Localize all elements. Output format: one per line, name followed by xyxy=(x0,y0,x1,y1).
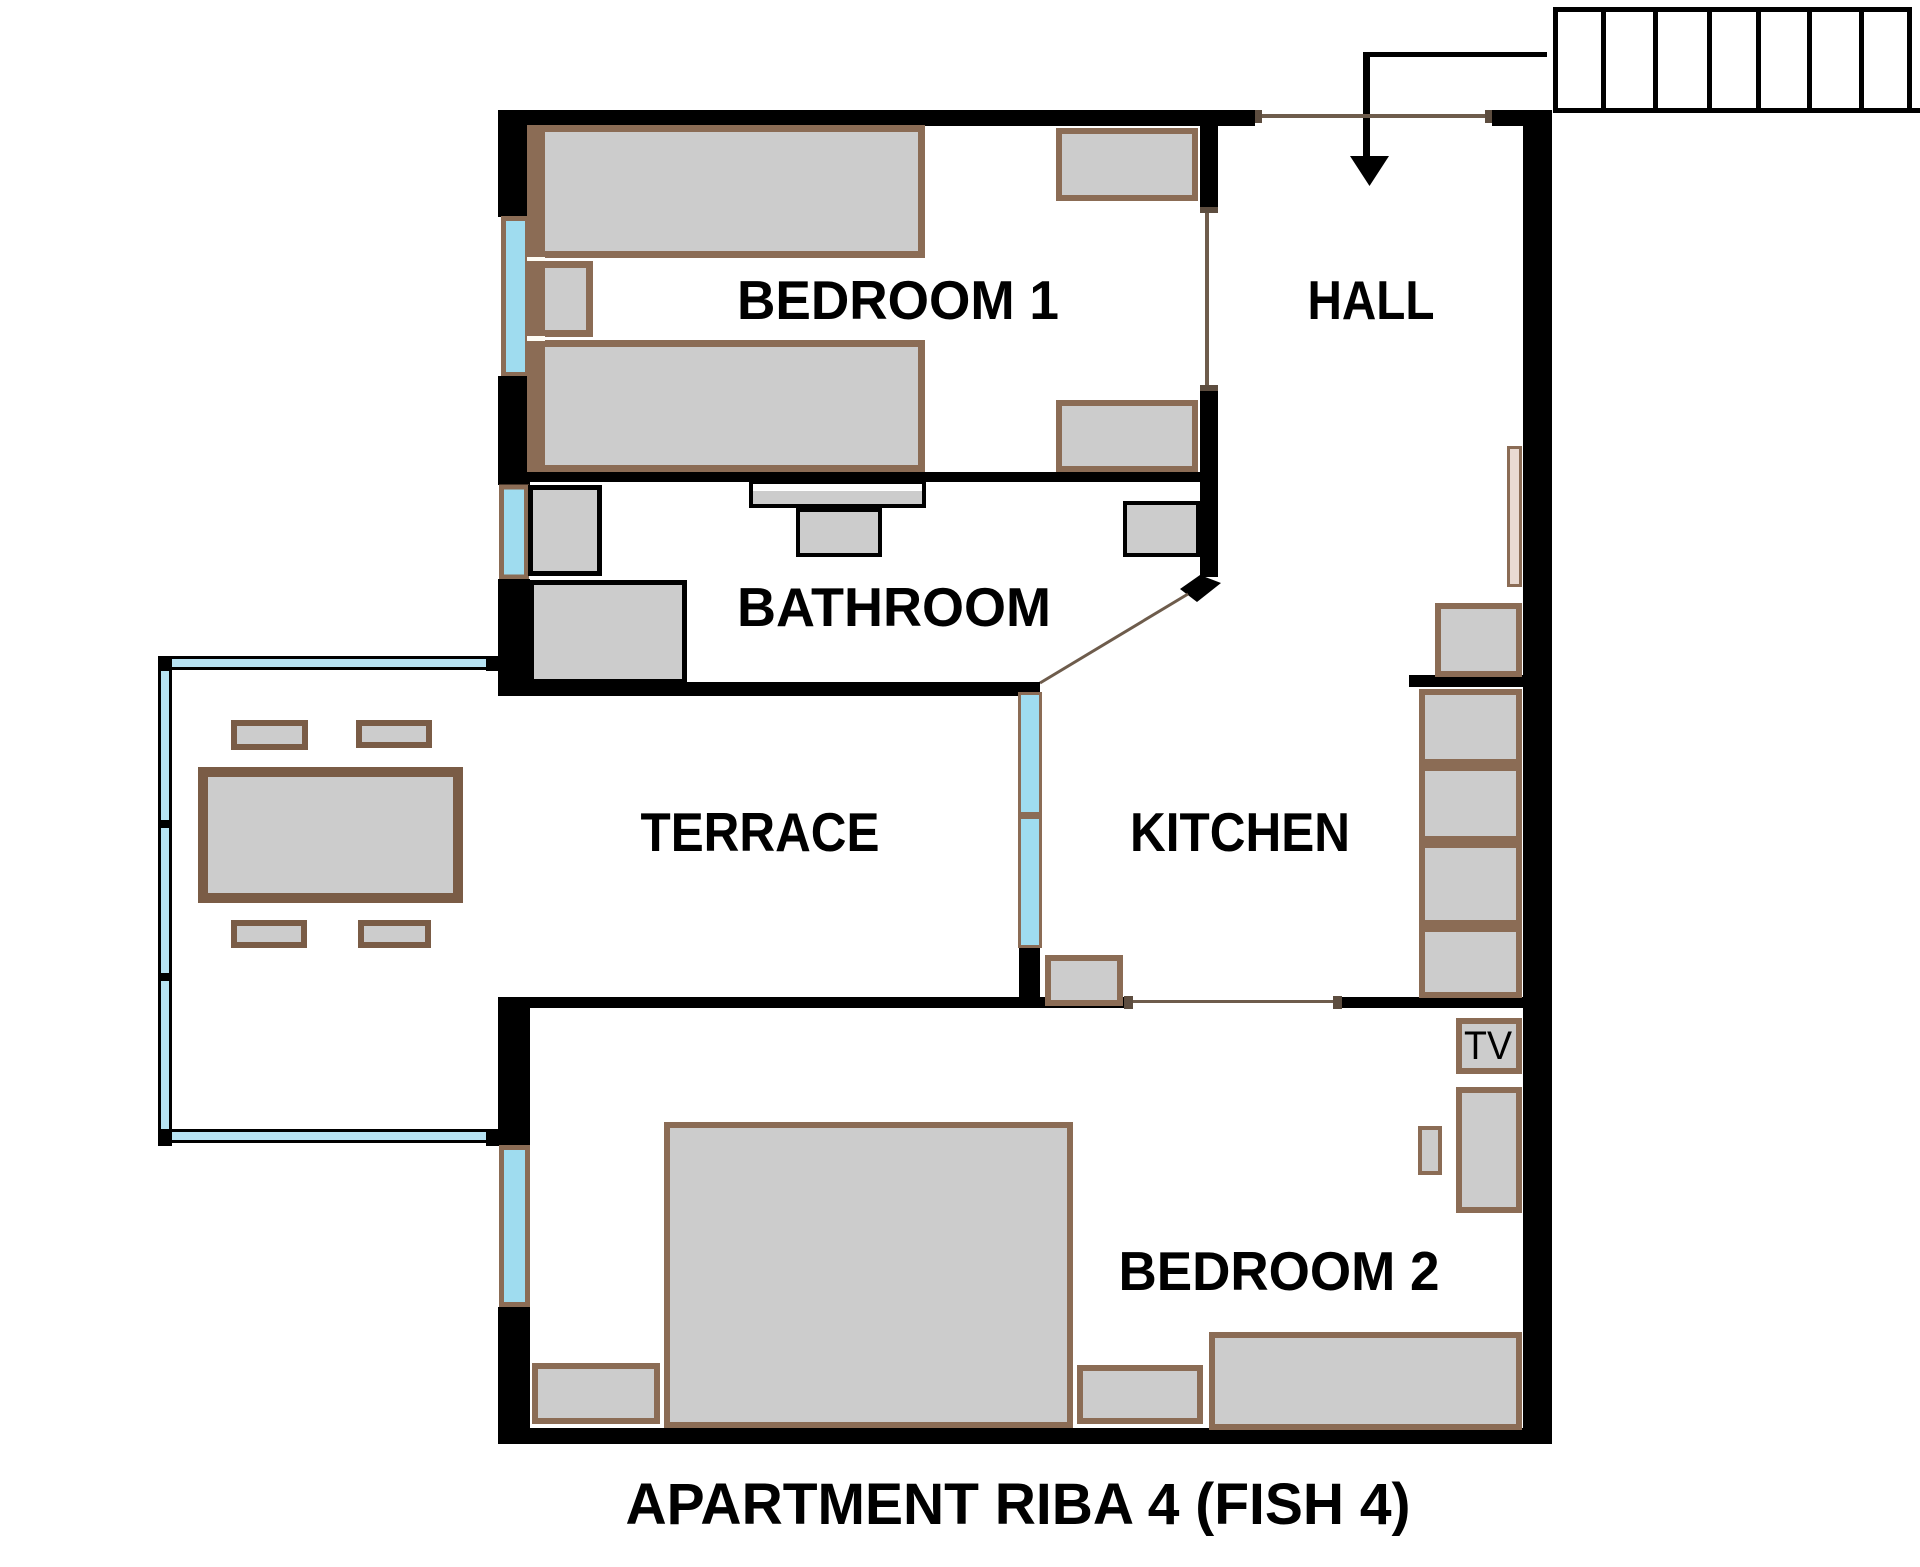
svg-text:BEDROOM 1: BEDROOM 1 xyxy=(737,269,1059,331)
svg-text:BATHROOM: BATHROOM xyxy=(737,576,1051,638)
svg-text:APARTMENT RIBA 4 (FISH 4): APARTMENT RIBA 4 (FISH 4) xyxy=(626,1472,1411,1537)
svg-text:BEDROOM 2: BEDROOM 2 xyxy=(1119,1240,1440,1302)
svg-text:KITCHEN: KITCHEN xyxy=(1130,801,1350,863)
svg-text:HALL: HALL xyxy=(1308,269,1435,331)
svg-text:TERRACE: TERRACE xyxy=(641,801,880,863)
svg-text:TV: TV xyxy=(1464,1024,1512,1068)
